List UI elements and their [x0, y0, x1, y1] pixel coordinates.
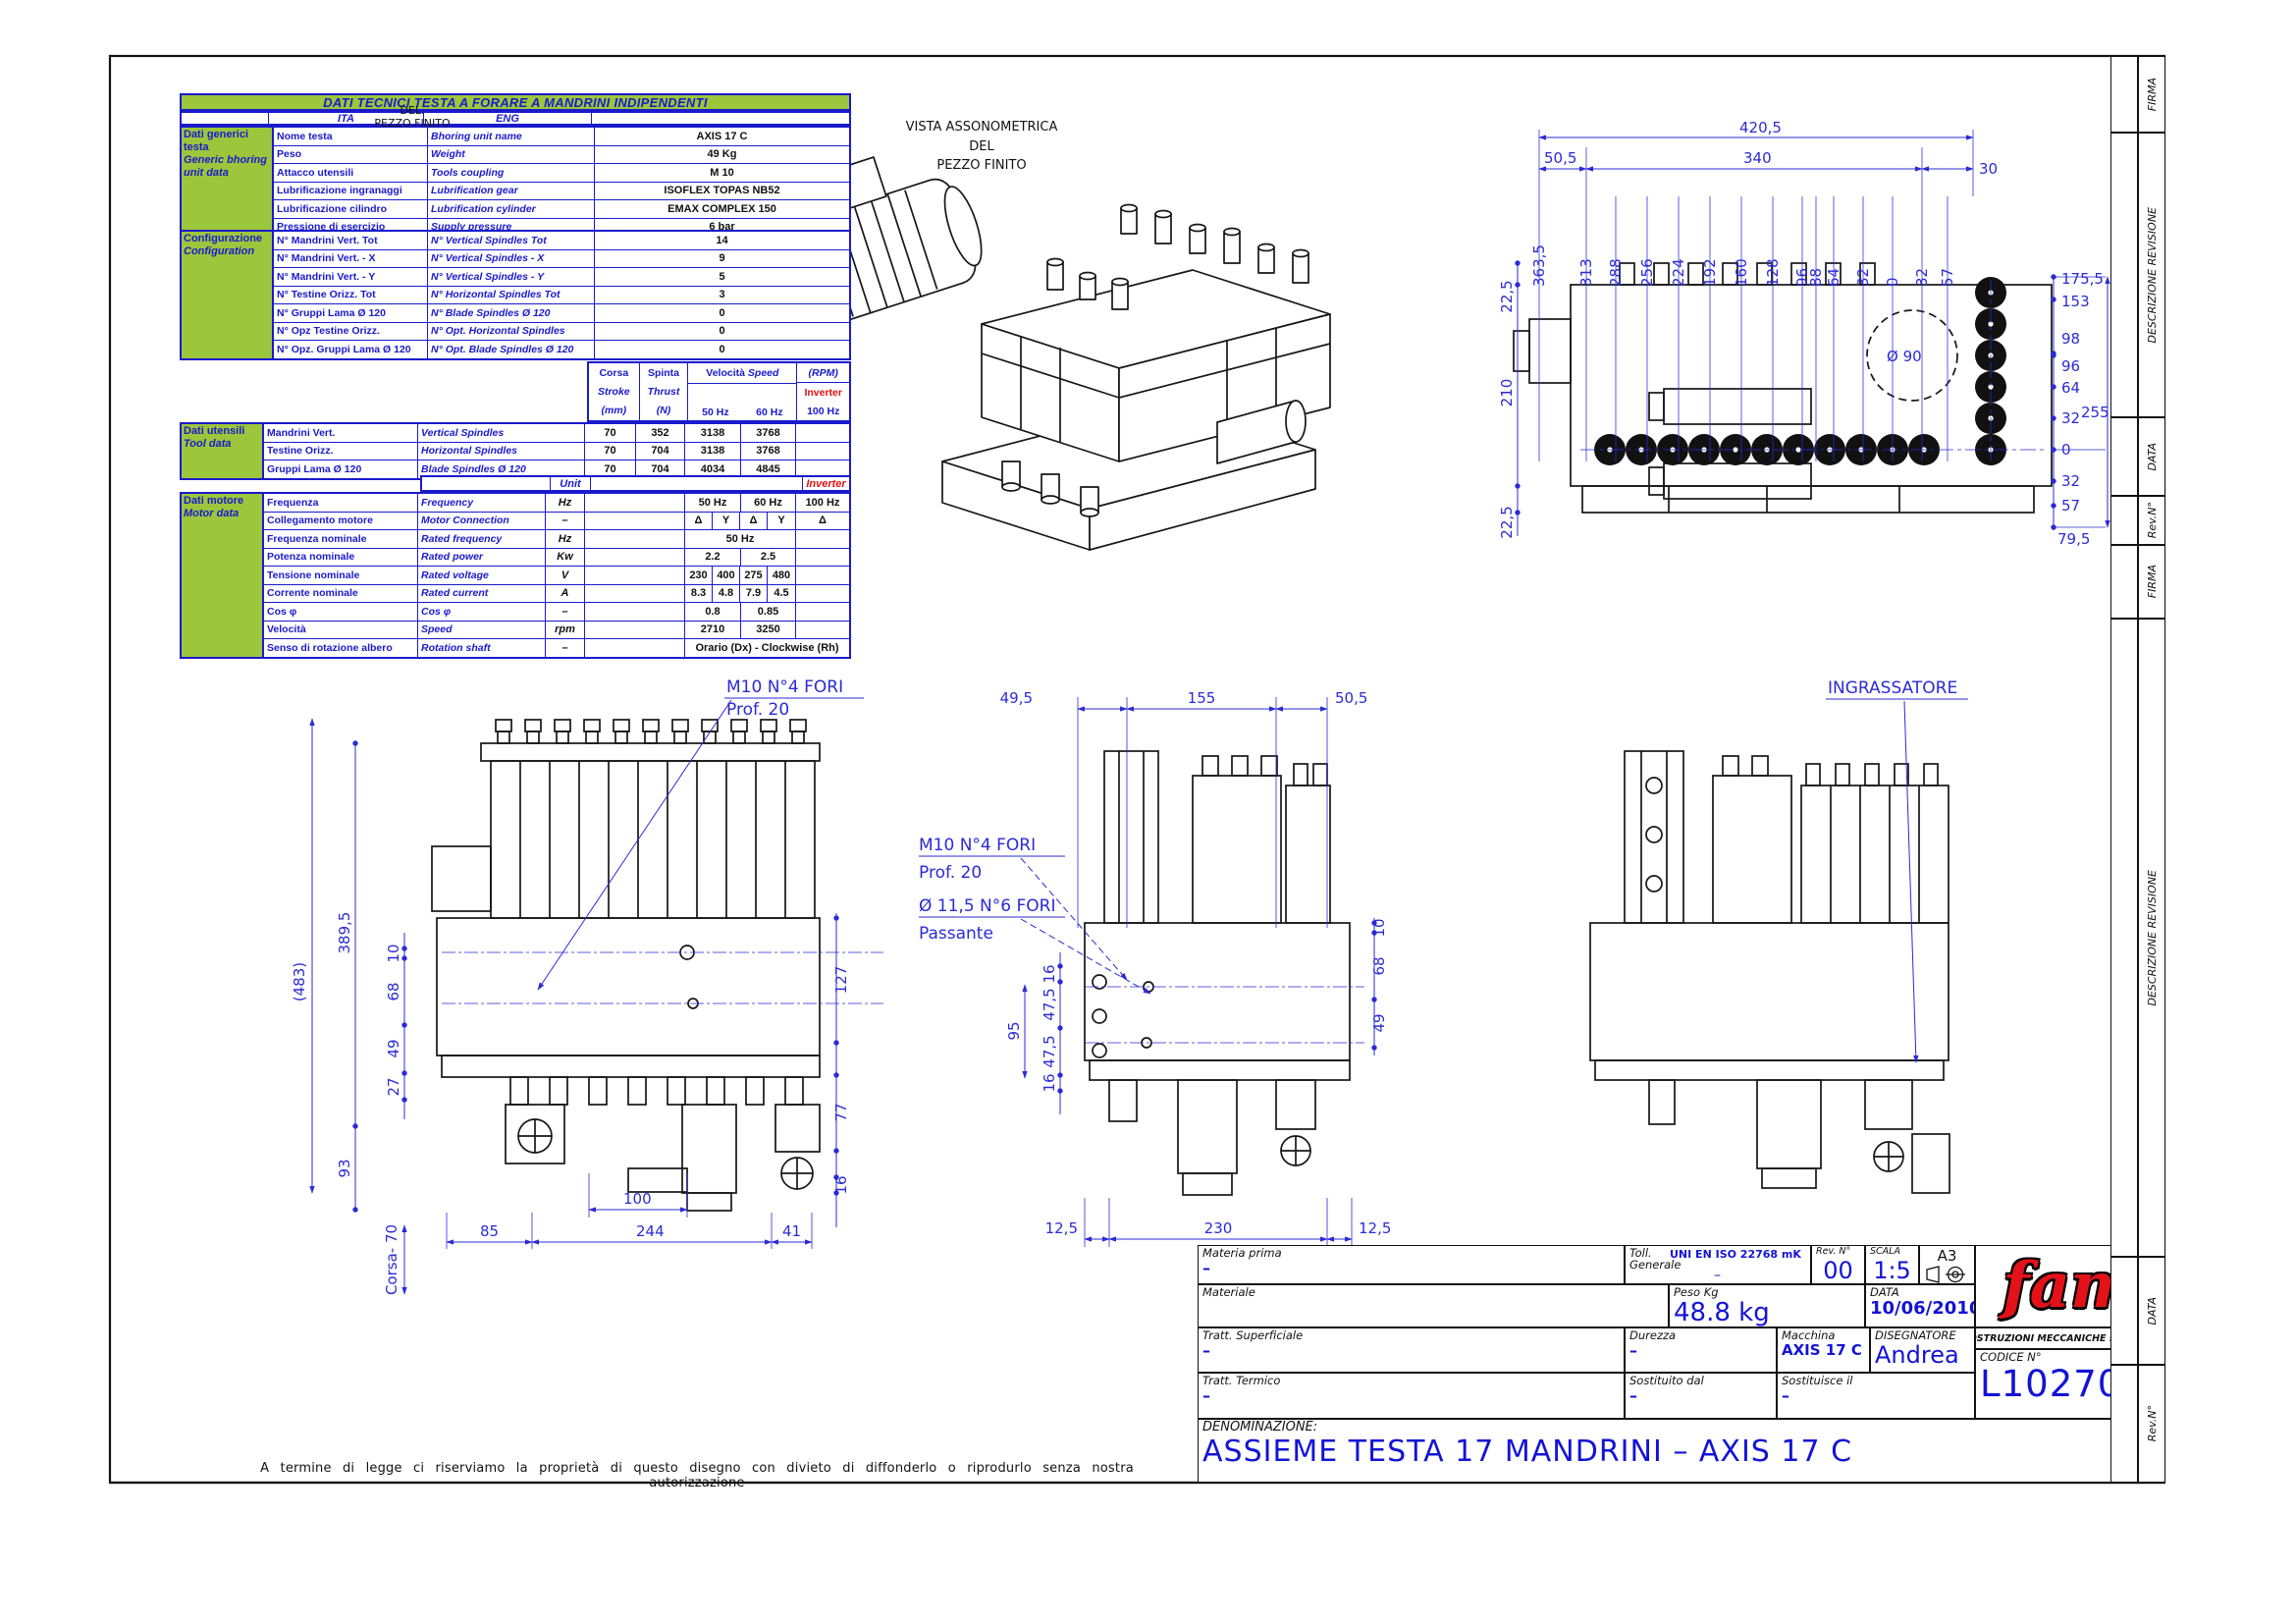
cell-blank: [585, 549, 685, 567]
lang-header-value: [592, 113, 849, 124]
rev-empty-cell: [2110, 496, 2138, 545]
scala-value: 1:5: [1870, 1257, 1914, 1284]
section-tool: Dati utensili Tool data Mandrini Vert. V…: [180, 422, 851, 480]
rev-header-revn: Rev.N°: [2138, 496, 2165, 545]
cell-speed-60hz: 3768: [741, 443, 796, 460]
section-config-label-eng: Configuration: [184, 245, 254, 257]
cell-a1: 8.3: [685, 585, 713, 603]
cell-eng: N° Vertical Spindles - Y: [428, 268, 595, 286]
cell-eng: Bhoring unit name: [428, 128, 595, 145]
section-config-label-ita: Configurazione: [184, 233, 262, 244]
cell-ita: Corrente nominale: [264, 585, 418, 603]
cell-blank-inv: [796, 549, 849, 567]
tb-peso: Peso Kg 48.8 kg: [1669, 1284, 1865, 1327]
toll-value: UNI EN ISO 22768 mK: [1670, 1248, 1801, 1261]
cell-blank: [585, 513, 685, 530]
section-motor-label-eng: Motor data: [184, 508, 239, 519]
cell-ita: Frequenza nominale: [264, 530, 418, 548]
rev-header-firma: FIRMA: [2138, 545, 2165, 619]
velocita-eng: Speed: [748, 367, 779, 379]
velocita-label: Velocità Speed: [688, 363, 796, 383]
cell-eng: Lubrification cylinder: [428, 200, 595, 218]
top-view-dim-labels: 420,5 50,5 340 30 363,5 313 288 256 224 …: [1498, 119, 2109, 548]
section-config: Configurazione Configuration N° Mandrini…: [180, 230, 851, 360]
iso-view-label: VISTA ASSONOMETRICA DEL PEZZO FINITO: [903, 118, 1060, 176]
cell-v2: 400: [713, 567, 740, 584]
tratt-superficiale-value: –: [1202, 1341, 1210, 1360]
artifact-line1: DEL.: [400, 104, 424, 117]
rdim-8: 57: [2061, 497, 2080, 514]
materia-prima-label: Materia prima: [1202, 1247, 1620, 1259]
dim-127: 127: [832, 966, 850, 995]
table-row: N° Mandrini Vert. Tot N° Vertical Spindl…: [274, 232, 849, 249]
cell-eng: Rated power: [418, 549, 546, 567]
speed-header-rpm: (RPM) Inverter 100 Hz: [797, 363, 849, 420]
cell-speed-inverter: [796, 443, 849, 460]
iso-label-line2: DEL: [969, 139, 993, 154]
cell-eng: Weight: [428, 146, 595, 164]
cell-speed-50hz: 3138: [685, 443, 741, 460]
cell-value: 0: [595, 304, 849, 322]
table-row: Nome testa Bhoring unit name AXIS 17 C: [274, 128, 849, 145]
rev-header-descrizione: DESCRIZIONE REVISIONE: [2138, 619, 2165, 1257]
spinta-unit: (N): [640, 402, 688, 420]
rev-header-revn: Rev.N°: [2138, 1365, 2165, 1483]
xdim-2: 288: [1607, 258, 1625, 287]
dim-85: 85: [480, 1222, 499, 1240]
corsa-unit: (mm): [589, 402, 639, 420]
unit-header-blank1: [422, 477, 551, 490]
table-row: Collegamento motore Motor Connection – Δ…: [264, 512, 849, 530]
dim-corsa-70: Corsa- 70: [383, 1224, 400, 1295]
rear-view: INGRASSATORE: [1590, 678, 1968, 1193]
cell-value: 9: [595, 250, 849, 268]
cell-rotation: Orario (Dx) - Clockwise (Rh): [685, 639, 849, 657]
cell-ita: N° Opz Testine Orizz.: [274, 323, 428, 341]
cell-value: M 10: [595, 164, 849, 182]
cell-speed-60hz: 3768: [741, 424, 796, 442]
cell-eng: Horizontal Spindles: [418, 443, 585, 460]
cell-ita: N° Mandrini Vert. - Y: [274, 268, 428, 286]
dim-10: 10: [385, 944, 402, 962]
section-generic-label-ita: Dati generici testa: [184, 129, 248, 153]
table-row: N° Mandrini Vert. - X N° Vertical Spindl…: [274, 249, 849, 268]
tb-tratt-termico: Tratt. Termico –: [1198, 1373, 1625, 1419]
cell-blank: [585, 639, 685, 657]
ldim-2: 22,5: [1498, 506, 1516, 538]
side-note-passante: Passante: [919, 924, 993, 944]
xdim-6: 160: [1733, 258, 1750, 287]
dim-68: 68: [385, 982, 402, 1001]
cell-blank: [585, 585, 685, 603]
table-row: Cos φ Cos φ – 0.8 0.85: [264, 602, 849, 621]
cell-cos-60: 0.85: [741, 603, 796, 621]
disegnatore-value: Andrea: [1875, 1341, 1959, 1369]
cell-ita: Cos φ: [264, 603, 418, 621]
section-generic-label: Dati generici testa Generic bhoring unit…: [182, 128, 274, 236]
sostituisce-value: –: [1782, 1386, 1789, 1405]
cell-a4: 4.5: [768, 585, 796, 603]
front-note-m10: M10 N°4 FORI: [726, 677, 843, 697]
scala-label: SCALA: [1870, 1247, 1914, 1257]
dim-27: 27: [385, 1077, 402, 1096]
spinta-eng: Thrust: [640, 382, 688, 401]
cell-ita: Tensione nominale: [264, 567, 418, 584]
dim-100: 100: [623, 1190, 652, 1208]
tb-sostituito-dal: Sostituito dal –: [1625, 1373, 1777, 1419]
xdim-4: 224: [1670, 258, 1687, 287]
data-label: DATA: [1870, 1286, 1970, 1298]
xdim-12: 0: [1884, 277, 1901, 287]
xdim-13: 32: [1913, 268, 1931, 287]
sostituisce-label: Sostituisce il: [1782, 1375, 1970, 1386]
rdim-0: 175,5: [2061, 270, 2104, 288]
rdim-5: 32: [2061, 409, 2080, 427]
cell-speed-50hz: 3138: [685, 424, 741, 442]
dim-12-5b: 12,5: [1359, 1219, 1391, 1237]
dim-230: 230: [1204, 1219, 1233, 1237]
cell-ita: Frequenza: [264, 494, 418, 512]
dim-16: 16: [832, 1175, 850, 1194]
rdim-2: 98: [2061, 330, 2080, 348]
descrizione-revisione-label: DESCRIZIONE REVISIONE: [2146, 207, 2159, 344]
dim-95: 95: [1005, 1021, 1023, 1040]
hz60-label: 60 Hz: [742, 406, 796, 418]
front-view: (483) 389,5 93 10 68 49 27 Corsa- 70 85 …: [291, 677, 883, 1295]
side-note-d11-5: Ø 11,5 N°6 FORI: [919, 896, 1055, 916]
cell-ita: Mandrini Vert.: [264, 424, 418, 442]
tb-formato: A3: [1919, 1245, 1975, 1284]
cell-eng: Rated voltage: [418, 567, 546, 584]
velocita-ita: Velocità: [706, 367, 745, 379]
projection-symbol-icon: [1926, 1266, 1969, 1283]
cell-eng: N° Opt. Horizontal Spindles: [428, 323, 595, 341]
tb-denominazione: DENOMINAZIONE: ASSIEME TESTA 17 MANDRINI…: [1198, 1419, 2164, 1483]
tb-macchina: Macchina AXIS 17 C: [1777, 1327, 1870, 1373]
cell-eng: Tools coupling: [428, 164, 595, 182]
cell-blank-inv: [796, 530, 849, 548]
firma-label: FIRMA: [2146, 78, 2159, 111]
dim-49-5: 49,5: [1000, 689, 1033, 707]
table-row: Lubrificazione ingranaggi Lubrification …: [274, 182, 849, 200]
cell-delta2: Δ: [740, 513, 768, 530]
cell-ita: Peso: [274, 146, 428, 164]
cell-eng: Vertical Spindles: [418, 424, 585, 442]
top-view-spindles: [1594, 277, 2006, 465]
tb-tratt-superficiale: Tratt. Superficiale –: [1198, 1327, 1625, 1373]
rdim-7: 32: [2061, 472, 2080, 490]
section-tool-label-ita: Dati utensili: [184, 425, 244, 437]
section-generic: Dati generici testa Generic bhoring unit…: [180, 126, 851, 238]
tratt-termico-label: Tratt. Termico: [1202, 1375, 1620, 1386]
cell-ita: Nome testa: [274, 128, 428, 145]
dim-244: 244: [636, 1222, 665, 1240]
dim-47-5b: 47,5: [1041, 1035, 1058, 1067]
front-view-dim-labels: (483) 389,5 93 10 68 49 27 Corsa- 70 85 …: [291, 677, 850, 1295]
cell-spinta: 352: [636, 424, 685, 442]
tb-materia-prima: Materia prima –: [1198, 1245, 1625, 1284]
cell-delta-inv: Δ: [796, 513, 849, 530]
table-row: N° Mandrini Vert. - Y N° Vertical Spindl…: [274, 267, 849, 286]
dim-389-5: 389,5: [336, 912, 353, 954]
cell-unit: –: [546, 513, 585, 530]
side-view: 49,5 155 50,5 95 16 47,5 47,5 16 10 68 4…: [919, 689, 1391, 1247]
xdim-11: 32: [1854, 268, 1872, 287]
cell-value: 0: [595, 341, 849, 358]
xdim-1: 313: [1577, 258, 1595, 287]
disegnatore-label: DISEGNATORE: [1875, 1329, 1970, 1341]
table-row: Testine Orizz. Horizontal Spindles 70 70…: [264, 442, 849, 460]
rev-n-label: Rev.N°: [2146, 502, 2159, 538]
cell-50hz: 50 Hz: [685, 494, 741, 512]
section-generic-rows: Nome testa Bhoring unit name AXIS 17 C P…: [274, 128, 849, 236]
dim-49: 49: [1370, 1013, 1388, 1032]
rdim-3: 96: [2061, 357, 2080, 375]
table-row: Mandrini Vert. Vertical Spindles 70 352 …: [264, 424, 849, 442]
rev-empty-cell: [2110, 417, 2138, 496]
cell-eng: N° Opt. Blade Spindles Ø 120: [428, 341, 595, 358]
dim-50-5: 50,5: [1544, 149, 1576, 167]
formato-value: A3: [1938, 1247, 1957, 1265]
section-tool-label-eng: Tool data: [184, 438, 231, 450]
cell-blank-inv: [796, 603, 849, 621]
cell-unit: V: [546, 567, 585, 584]
cell-value: 5: [595, 268, 849, 286]
table-row: Lubrificazione cilindro Lubrification cy…: [274, 199, 849, 218]
tech-table-lang-header: ITA ENG: [180, 111, 851, 126]
unit-header-blank2: [591, 477, 803, 490]
cell-blank: [585, 603, 685, 621]
materiale-label: Materiale: [1202, 1286, 1664, 1298]
front-fittings: [496, 720, 806, 743]
tb-scala: SCALA 1:5: [1865, 1245, 1919, 1284]
table-row: Frequenza nominale Rated frequency Hz 50…: [264, 529, 849, 548]
speed-header: Corsa Stroke (mm) Spinta Thrust (N) Velo…: [587, 361, 851, 422]
rev-value: 00: [1816, 1257, 1860, 1284]
legal-notice: A termine di legge ci riserviamo la prop…: [226, 1461, 1168, 1490]
cell-eng: Frequency: [418, 494, 546, 512]
cell-v4: 480: [768, 567, 796, 584]
toll-dash: –: [1714, 1268, 1721, 1283]
cell-power-50: 2.2: [685, 549, 741, 567]
section-motor-label-ita: Dati motore: [184, 495, 243, 507]
section-motor: Dati motore Motor data Frequenza Frequen…: [180, 492, 851, 659]
tech-table-title: DATI TECNICI TESTA A FORARE A MANDRINI I…: [180, 93, 851, 111]
cell-eng: Lubrification gear: [428, 183, 595, 200]
table-row: N° Gruppi Lama Ø 120 N° Blade Spindles Ø…: [274, 303, 849, 322]
hz50-label: 50 Hz: [688, 406, 742, 418]
xdim-14: 57: [1939, 268, 1956, 287]
tb-tolleranza: Toll. UNI EN ISO 22768 mK Generale –: [1625, 1245, 1811, 1284]
dim-483: (483): [291, 962, 308, 1001]
cell-cos-50: 0.8: [685, 603, 741, 621]
rdim-9: 79,5: [2057, 530, 2090, 548]
corsa-ita: Corsa: [589, 363, 639, 382]
cell-ita: Attacco utensili: [274, 164, 428, 182]
rev-empty-cell: [2110, 545, 2138, 619]
firma-label: FIRMA: [2146, 565, 2159, 598]
speed-header-corsa: Corsa Stroke (mm): [589, 363, 640, 420]
cell-blank: [585, 622, 685, 639]
cell-value: ISOFLEX TOPAS NB52: [595, 183, 849, 200]
durezza-label: Durezza: [1629, 1329, 1772, 1341]
hz-cells: 50 Hz 60 Hz: [688, 383, 796, 420]
cell-ita: Lubrificazione cilindro: [274, 200, 428, 218]
cell-ita: N° Testine Orizz. Tot: [274, 287, 428, 304]
spinta-ita: Spinta: [640, 363, 688, 382]
data-label: DATA: [2146, 443, 2159, 470]
cell-unit: rpm: [546, 622, 585, 639]
cell-blank-inv: [796, 622, 849, 639]
cell-eng: Rated current: [418, 585, 546, 603]
denominazione-label: DENOMINAZIONE:: [1202, 1421, 2160, 1435]
cell-ita: Senso di rotazione albero: [264, 639, 418, 657]
cell-60hz: 60 Hz: [741, 494, 796, 512]
section-tool-rows: Mandrini Vert. Vertical Spindles 70 352 …: [264, 424, 849, 478]
cell-unit: –: [546, 639, 585, 657]
cell-eng: Motor Connection: [418, 513, 546, 530]
rev-header-firma: FIRMA: [2138, 56, 2165, 133]
table-row: N° Opz. Gruppi Lama Ø 120 N° Opt. Blade …: [274, 340, 849, 358]
cell-ita: Gruppi Lama Ø 120: [264, 460, 418, 478]
cell-100hz: 100 Hz: [796, 494, 849, 512]
tb-disegnatore: DISEGNATORE Andrea: [1870, 1327, 1975, 1373]
table-row: Potenza nominale Rated power Kw 2.2 2.5: [264, 548, 849, 567]
data-value: 10/06/2010: [1870, 1298, 1975, 1319]
drawing-sheet: 420,5 50,5 340 30 363,5 313 288 256 224 …: [0, 0, 2296, 1624]
dim-68: 68: [1370, 956, 1388, 975]
cell-power-60: 2.5: [741, 549, 796, 567]
dim-93: 93: [336, 1159, 353, 1177]
peso-value: 48.8 kg: [1674, 1298, 1770, 1327]
motor-unit-header: Unit Inverter: [420, 475, 851, 492]
rev-empty-cell: [2110, 133, 2138, 417]
cell-ita: Collegamento motore: [264, 513, 418, 530]
cell-eng: Cos φ: [418, 603, 546, 621]
cell-ita: Potenza nominale: [264, 549, 418, 567]
sostituito-value: –: [1629, 1386, 1637, 1405]
artifact-line2: PEZZO FINITO: [374, 117, 450, 130]
rev-header-descrizione: DESCRIZIONE REVISIONE: [2138, 133, 2165, 417]
cell-value: 14: [595, 232, 849, 249]
cell-eng: Rotation shaft: [418, 639, 546, 657]
corsa-eng: Stroke: [589, 382, 639, 401]
macchina-value: AXIS 17 C: [1782, 1341, 1862, 1359]
cell-eng: N° Horizontal Spindles Tot: [428, 287, 595, 304]
tb-revisione: Rev. N° 00: [1811, 1245, 1865, 1284]
dim-10: 10: [1370, 918, 1388, 937]
peso-label: Peso Kg: [1674, 1286, 1860, 1298]
rdim-1: 153: [2061, 293, 2090, 310]
lang-header-blank: [182, 113, 269, 124]
section-config-rows: N° Mandrini Vert. Tot N° Vertical Spindl…: [274, 232, 849, 358]
cell-spinta: 704: [636, 443, 685, 460]
cell-ita: Testine Orizz.: [264, 443, 418, 460]
tb-materiale: Materiale: [1198, 1284, 1669, 1327]
cell-rated-freq: 50 Hz: [685, 530, 796, 548]
table-row: N° Testine Orizz. Tot N° Horizontal Spin…: [274, 286, 849, 304]
rear-note-ingrassatore: INGRASSATORE: [1828, 678, 1957, 698]
xdim-0: 363,5: [1530, 244, 1548, 287]
tratt-superficiale-label: Tratt. Superficiale: [1202, 1329, 1620, 1341]
cell-eng: N° Vertical Spindles - X: [428, 250, 595, 268]
cell-unit: A: [546, 585, 585, 603]
rev-empty-cell: [2110, 1257, 2138, 1365]
front-note-prof: Prof. 20: [726, 700, 789, 720]
rev-label: Rev. N°: [1816, 1247, 1860, 1257]
cell-value: 3: [595, 287, 849, 304]
cell-delta1: Δ: [685, 513, 713, 530]
xdim-3: 256: [1638, 258, 1656, 287]
hz100-label: 100 Hz: [797, 402, 849, 420]
sostituito-label: Sostituito dal: [1629, 1375, 1772, 1386]
inverter-header-label: Inverter: [803, 477, 849, 490]
cell-eng: Speed: [418, 622, 546, 639]
macchina-label: Macchina: [1782, 1329, 1865, 1341]
rev-empty-cell: [2110, 56, 2138, 133]
denominazione-value: ASSIEME TESTA 17 MANDRINI – AXIS 17 C: [1202, 1435, 1852, 1469]
dim-155: 155: [1188, 689, 1216, 707]
circle-diameter-label: Ø 90: [1887, 348, 1922, 365]
iso-label-line1: VISTA ASSONOMETRICA: [906, 120, 1058, 135]
cell-value: 0: [595, 323, 849, 341]
rev-n-label: Rev.N°: [2146, 1405, 2159, 1441]
ldim-0: 22,5: [1498, 280, 1516, 312]
cell-ita: N° Mandrini Vert. Tot: [274, 232, 428, 249]
cell-value: EMAX COMPLEX 150: [595, 200, 849, 218]
table-row: Peso Weight 49 Kg: [274, 145, 849, 164]
cell-blank-inv: [796, 567, 849, 584]
rpm-label: (RPM): [797, 363, 849, 382]
section-tool-label: Dati utensili Tool data: [182, 424, 264, 478]
unit-header-label: Unit: [551, 477, 591, 490]
section-motor-label: Dati motore Motor data: [182, 494, 264, 657]
table-row: Senso di rotazione albero Rotation shaft…: [264, 638, 849, 657]
table-row: Tensione nominale Rated voltage V 230 40…: [264, 566, 849, 584]
cell-a2: 4.8: [713, 585, 740, 603]
cell-corsa: 70: [585, 443, 636, 460]
descrizione-revisione-label: DESCRIZIONE REVISIONE: [2146, 870, 2159, 1006]
cell-value: 49 Kg: [595, 146, 849, 164]
cell-unit: Hz: [546, 530, 585, 548]
cell-unit: Hz: [546, 494, 585, 512]
table-row: Velocità Speed rpm 2710 3250: [264, 621, 849, 639]
cell-unit: Kw: [546, 549, 585, 567]
xdim-9: 88: [1807, 268, 1825, 287]
dim-12-5a: 12,5: [1045, 1219, 1078, 1237]
dim-30: 30: [1979, 160, 1998, 178]
data-label: DATA: [2146, 1297, 2159, 1325]
table-row: Frequenza Frequency Hz 50 Hz 60 Hz 100 H…: [264, 494, 849, 512]
cell-speed-60: 3250: [741, 622, 796, 639]
xdim-7: 128: [1764, 258, 1782, 287]
dim-49: 49: [385, 1039, 402, 1057]
side-view-dim-labels: 49,5 155 50,5 95 16 47,5 47,5 16 10 68 4…: [919, 689, 1391, 1237]
cell-star2: Y: [768, 513, 796, 530]
cell-blank: [585, 494, 685, 512]
rdim-6: 0: [2061, 441, 2071, 459]
materia-prima-value: –: [1202, 1259, 1210, 1277]
side-note-prof: Prof. 20: [919, 863, 982, 883]
cell-ita: N° Mandrini Vert. - X: [274, 250, 428, 268]
durezza-value: –: [1629, 1341, 1637, 1360]
rev-header-data: DATA: [2138, 417, 2165, 496]
cell-value: AXIS 17 C: [595, 128, 849, 145]
side-note-m10: M10 N°4 FORI: [919, 836, 1036, 855]
cell-star1: Y: [713, 513, 740, 530]
cell-eng: N° Vertical Spindles Tot: [428, 232, 595, 249]
cell-v1: 230: [685, 567, 713, 584]
